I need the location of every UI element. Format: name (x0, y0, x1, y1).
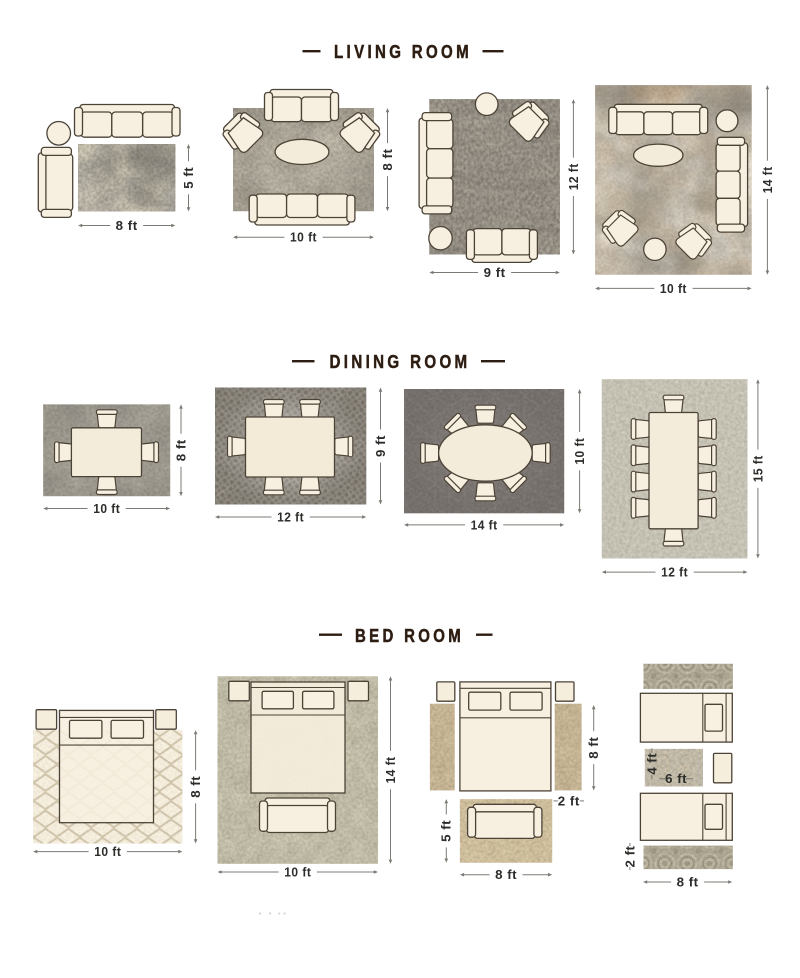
svg-text:6 ft: 6 ft (665, 771, 687, 786)
svg-text:5 ft: 5 ft (439, 820, 454, 842)
svg-text:9 ft: 9 ft (484, 265, 506, 280)
svg-text:8 ft: 8 ft (188, 776, 203, 798)
svg-text:10 ft: 10 ft (572, 437, 587, 464)
svg-text:14 ft: 14 ft (383, 756, 398, 783)
svg-text:8 ft: 8 ft (173, 439, 188, 461)
svg-text:10 ft: 10 ft (94, 844, 121, 859)
svg-text:DINING ROOM: DINING ROOM (330, 352, 471, 372)
svg-text:14 ft: 14 ft (471, 517, 498, 532)
svg-text:9 ft: 9 ft (373, 435, 388, 457)
svg-text:8 ft: 8 ft (677, 874, 699, 889)
svg-text:8 ft: 8 ft (380, 148, 395, 170)
svg-text:2 ft: 2 ft (558, 793, 580, 808)
svg-text:12 ft: 12 ft (277, 509, 304, 524)
svg-text:15 ft: 15 ft (750, 455, 765, 482)
svg-text:8 ft: 8 ft (116, 218, 138, 233)
svg-text:8 ft: 8 ft (586, 737, 601, 759)
svg-text:2 ft: 2 ft (622, 845, 637, 867)
svg-text:10 ft: 10 ft (290, 230, 317, 245)
svg-text:BED ROOM: BED ROOM (355, 626, 464, 646)
svg-text:5 ft: 5 ft (181, 167, 196, 189)
svg-text:10 ft: 10 ft (93, 501, 120, 516)
svg-text:12 ft: 12 ft (566, 163, 581, 190)
svg-text:14 ft: 14 ft (760, 166, 775, 193)
svg-text:LIVING ROOM: LIVING ROOM (334, 42, 472, 62)
svg-text:10 ft: 10 ft (660, 281, 687, 296)
svg-text:8 ft: 8 ft (495, 867, 517, 882)
svg-text:12 ft: 12 ft (661, 565, 688, 580)
svg-text:10 ft: 10 ft (284, 864, 311, 879)
svg-text:4 ft: 4 ft (644, 753, 659, 775)
